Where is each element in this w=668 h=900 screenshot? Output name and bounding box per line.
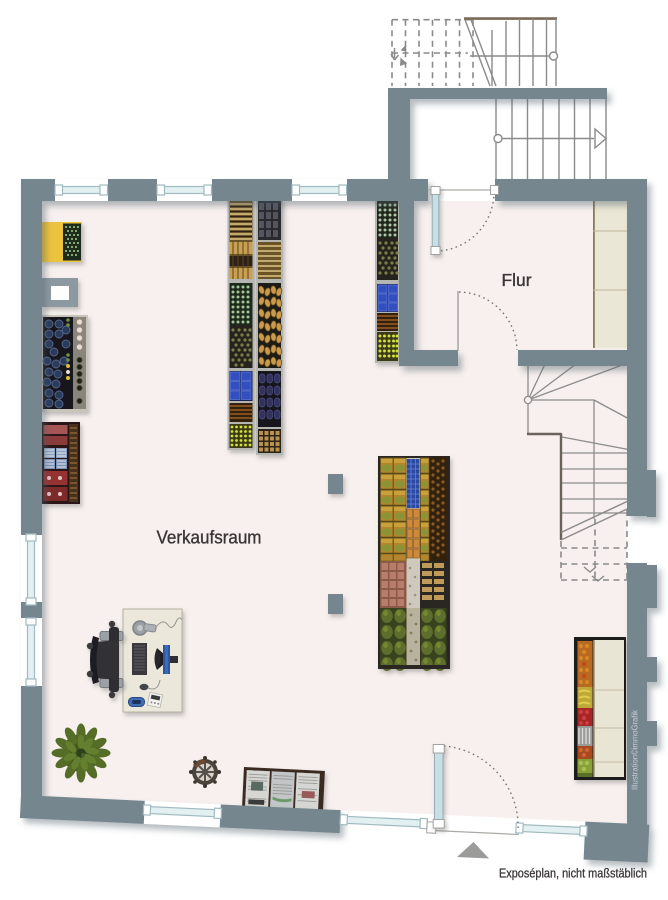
svg-text:Exposéplan, nicht maßstäblich: Exposéplan, nicht maßstäblich xyxy=(499,866,647,881)
svg-text:Flur: Flur xyxy=(502,270,532,290)
svg-text:Verkaufsraum: Verkaufsraum xyxy=(157,528,262,548)
svg-text:Illustration©immoGrafik: Illustration©immoGrafik xyxy=(631,709,640,790)
